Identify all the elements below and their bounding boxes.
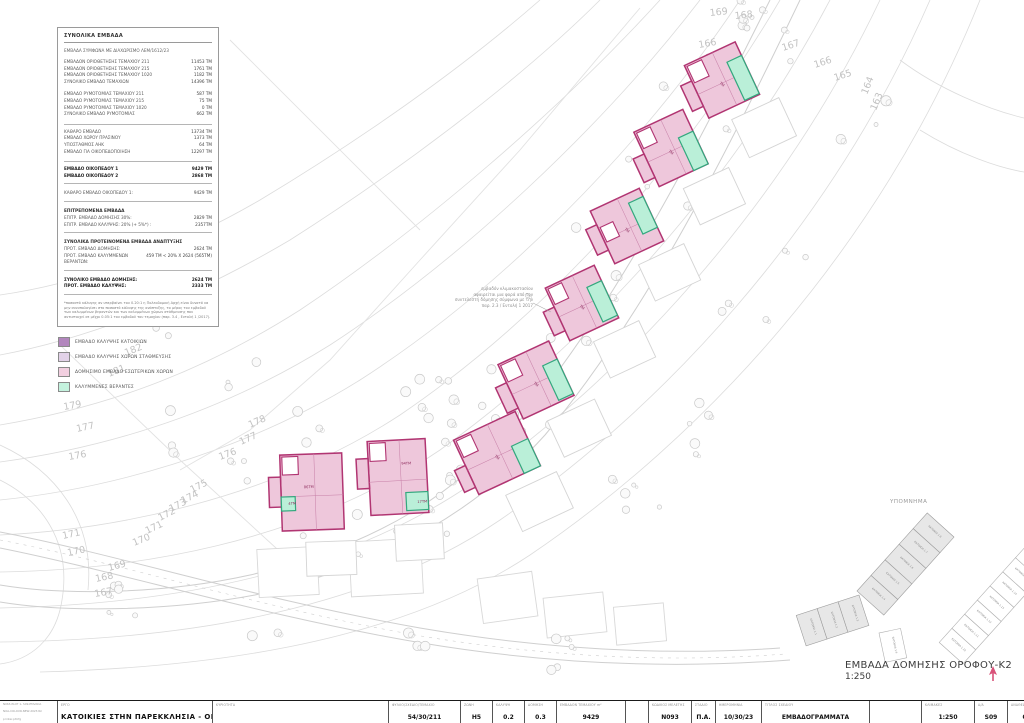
table-row-value: 2868 ΤΜ <box>192 173 212 180</box>
title-bar: N063-PLOT 1- S09-EMVADANOA-COLOUR-NEW-20… <box>0 700 1024 723</box>
titleblock-field-value: 9429 <box>560 715 622 722</box>
legend-label: ΕΜΒΑΔΟ ΚΑΛΥΨΗΣ ΧΩΡΩΝ ΣΤΑΘΜΕΥΣΗΣ <box>75 355 171 360</box>
table-row: ΚΑΘΑΡΟ ΕΜΒΑΔΟ13734 ΤΜ <box>64 129 212 136</box>
contour-label: 168 <box>734 9 753 22</box>
contour-label: 171 <box>61 527 81 542</box>
table-row: ΕΜΒΑΔΟ ΡΥΜΟΤΟΜΙΑΣ ΤΕΜΑΧΙΟΥ 21575 ΤΜ <box>64 98 212 105</box>
titleblock-spacer <box>625 701 648 723</box>
ownership-label: ΚΥΡΙΟΤΗΤΑ <box>216 703 385 707</box>
table-row: ΕΠΙΤΡ. ΕΜΒΑΔΟ ΔΟΜΗΣΗΣ 30%:2829 ΤΜ <box>64 215 212 222</box>
table-section: ΕΜΒΑΔΟ ΟΙΚΟΠΕΔΟΥ 19429 ΤΜΕΜΒΑΔΟ ΟΙΚΟΠΕΔΟ… <box>64 161 212 184</box>
table-section: ΣΥΝΟΛΙΚΑ ΠΡΟΤΕΙΝΟΜΕΝΑ ΕΜΒΑΔΑ ΑΝΑΠΤΥΞΗΣΠΡ… <box>64 239 212 271</box>
plan-title: ΕΜΒΑΔΑ ΔΟΜΗΣΗΣ ΟΡΟΦΟΥ-Κ2 <box>845 660 1012 671</box>
print-info-cell: N063-PLOT 1- S09-EMVADANOA-COLOUR-NEW-20… <box>0 701 57 723</box>
table-section-heading: ΣΥΝΟΛΙΚΑ ΠΡΟΤΕΙΝΟΜΕΝΑ ΕΜΒΑΔΑ ΑΝΑΠΤΥΞΗΣ <box>64 239 212 246</box>
legend-item: ΚΑΛΥΜΜΕΝΕΣ ΒΕΡΑΝΤΕΣ <box>58 382 173 392</box>
plan-title-block: ΕΜΒΑΔΑ ΔΟΜΗΣΗΣ ΟΡΟΦΟΥ-Κ2 1:250 <box>845 660 1012 682</box>
table-row-label: ΣΥΝΟΛΙΚΟ ΕΜΒΑΔΟ ΔΟΜΗΣΗΣ: <box>64 277 137 284</box>
table-row-value: 2624 ΤΜ <box>192 277 212 284</box>
building-area-label: 94ΤΜ <box>401 461 411 466</box>
titleblock-field-label: ΑΝΑΘΕΩΡΗΣΗ <box>1011 703 1024 707</box>
table-row-value: 2624 ΤΜ <box>194 246 212 253</box>
project-label: ΕΡΓΟ <box>61 703 209 707</box>
table-row-value: 9429 ΤΜ <box>194 190 212 197</box>
table-row: ΕΜΒΑΔΟΝ ΟΡΙΟΘΕΤΗΣΗΣ ΤΕΜΑΧΙΟΥ 10201182 ΤΜ <box>64 72 212 79</box>
contour-label: 177 <box>238 430 259 447</box>
table-section: ΚΑΘΑΡΟ ΕΜΒΑΔΟ13734 ΤΜΕΜΒΑΔΟ ΧΩΡΟΥ ΠΡΑΣΙΝ… <box>64 124 212 155</box>
print-info-line: NOA-COLOUR-NEW-2023.tbl <box>3 710 54 713</box>
legend-swatch <box>58 382 70 392</box>
titleblock-field: ΕΜΒΑΔΟΝ ΤΕΜΑΧΙΟΥ m²9429 <box>556 701 625 723</box>
north-arrow-icon <box>988 666 998 682</box>
table-row-value: 587 ΤΜ <box>197 91 213 98</box>
legend: ΕΜΒΑΔΟ ΚΑΛΥΨΗΣ ΚΑΤΟΙΚΙΩΝΕΜΒΑΔΟ ΚΑΛΥΨΗΣ Χ… <box>58 337 173 397</box>
annotation-line: παρ. 2.3 / Εντολή 1 2017 <box>431 303 533 309</box>
legend-label: ΔΟΜΗΣΙΜΟ ΕΜΒΑΔΟ ΕΣΩΤΕΡΙΚΩΝ ΧΩΡΩΝ <box>75 370 173 375</box>
table-row-label: ΕΜΒΑΔΟΝ ΟΡΙΟΘΕΤΗΣΗΣ ΤΕΜΑΧΙΟΥ 215 <box>64 66 149 73</box>
table-row: ΠΡΟΤ. ΕΜΒΑΔΟ ΚΑΛΥΨΗΣ:2333 ΤΜ <box>64 283 212 290</box>
table-row-value: 1761 ΤΜ <box>194 66 212 73</box>
legend-item: ΔΟΜΗΣΙΜΟ ΕΜΒΑΔΟ ΕΣΩΤΕΡΙΚΩΝ ΧΩΡΩΝ <box>58 367 173 377</box>
table-row-label: ΣΥΝΟΛΙΚΟ ΕΜΒΑΔΟ ΤΕΜΑΧΙΩΝ <box>64 79 129 86</box>
contour-label: 177 <box>75 420 95 435</box>
contour-label: 179 <box>63 399 83 413</box>
table-row: ΕΜΒΑΔΟ ΡΥΜΟΤΟΜΙΑΣ ΤΕΜΑΧΙΟΥ 211587 ΤΜ <box>64 91 212 98</box>
building-area-label: 17ΤΜ <box>417 500 427 505</box>
contour-label: 167 <box>781 38 802 54</box>
site-plan-sheet: 1691681671661651661651641631831821811791… <box>0 0 1024 723</box>
table-row-label: ΚΑΘΑΡΟ ΕΜΒΑΔΟ <box>64 129 101 136</box>
ownership-cell: ΚΥΡΙΟΤΗΤΑ <box>212 701 388 723</box>
table-row: ΕΠΙΤΡ. ΕΜΒΑΔΟ ΚΑΛΥΨΗΣ: 20% (+ 5%*) :2357… <box>64 222 212 229</box>
table-row-label: ΥΠΟΣΤΑΘΜΟΣ ΑΗΚ <box>64 142 104 149</box>
table-row-label: ΕΜΒΑΔΟ ΓΙΑ ΟΙΚΟΠΕΔΟΠΟΙΗΣΗ <box>64 149 130 156</box>
plan-scale: 1:250 <box>845 672 1012 682</box>
titleblock-field-value: 00-000000 <box>1011 715 1024 722</box>
table-row: ΚΑΘΑΡΟ ΕΜΒΑΔΟ ΟΙΚΟΠΕΔΟΥ 1:9429 ΤΜ <box>64 190 212 197</box>
table-row-value: 9429 ΤΜ <box>192 166 212 173</box>
titleblock-field: ΣΤΑΔΙΟΠ.Α. <box>691 701 715 723</box>
legend-item: ΕΜΒΑΔΟ ΚΑΛΥΨΗΣ ΚΑΤΟΙΚΙΩΝ <box>58 337 173 347</box>
titleblock-field-label: ΔΟΜΗΣΗ <box>528 703 553 707</box>
contour-label: 178 <box>247 413 268 430</box>
titleblock-field: ΤΙΤΛΟΣ ΣΧΕΔΙΟΥΕΜΒΑΔΟΓΡΑΜΜΑΤΑ <box>761 701 869 723</box>
table-row: ΥΠΟΣΤΑΘΜΟΣ ΑΗΚ64 ΤΜ <box>64 142 212 149</box>
table-row-label: ΣΥΝΟΛΙΚΟ ΕΜΒΑΔΟ ΡΥΜΟΤΟΜΙΑΣ <box>64 111 135 118</box>
titleblock-field-label: ΗΜΕΡΟΜΗΝΙΑ <box>719 703 758 707</box>
titleblock-field-label: ΕΜΒΑΔΟΝ ΤΕΜΑΧΙΟΥ m² <box>560 703 622 707</box>
titleblock-field: ΖΩΝΗΗ5 <box>460 701 492 723</box>
table-row-label: ΠΡΟΤ. ΕΜΒΑΔΟ ΔΟΜΗΣΗΣ: <box>64 246 120 253</box>
legend-swatch <box>58 352 70 362</box>
table-row-label: ΠΡΟΤ. ΕΜΒΑΔΟ ΚΑΛΥΨΗΣ: <box>64 283 126 290</box>
table-row: ΣΥΝΟΛΙΚΟ ΕΜΒΑΔΟ ΤΕΜΑΧΙΩΝ14396 ΤΜ <box>64 79 212 86</box>
print-info-line: N063-PLOT 1- S09-EMVADA <box>3 703 54 706</box>
titleblock-field-value: S09 <box>978 715 1004 722</box>
titleblock-field: ΦΥΛΛΟ/ΣΧΕΔΙΟ/ΤΕΜΑΧΙΟ54/30/211 <box>388 701 460 723</box>
table-row-label: ΕΠΙΤΡ. ΕΜΒΑΔΟ ΚΑΛΥΨΗΣ: 20% (+ 5%*) : <box>64 222 151 229</box>
titleblock-field-value: Π.Α. <box>695 715 712 722</box>
table-row-value: 2829 ΤΜ <box>194 215 212 222</box>
annotation-leader-line <box>533 303 551 312</box>
contour-label: 166 <box>698 37 718 51</box>
titleblock-field-value: 0.2 <box>496 715 521 722</box>
legend-label: ΕΜΒΑΔΟ ΚΑΛΥΨΗΣ ΚΑΤΟΙΚΙΩΝ <box>75 340 147 345</box>
legend-label: ΚΑΛΥΜΜΕΝΕΣ ΒΕΡΑΝΤΕΣ <box>75 385 134 390</box>
building-area-label: 86ΤΜ <box>304 485 314 489</box>
table-row: ΣΥΝΟΛΙΚΟ ΕΜΒΑΔΟ ΡΥΜΟΤΟΜΙΑΣ662 ΤΜ <box>64 111 212 118</box>
titleblock-field: ΚΛΙΜΑΚΕΣ1:250 <box>921 701 974 723</box>
table-row: ΣΥΝΟΛΙΚΟ ΕΜΒΑΔΟ ΔΟΜΗΣΗΣ:2624 ΤΜ <box>64 277 212 284</box>
staircase-annotation: εμβαδόν κλιμακοστασίουαφαιρείται μια φορ… <box>431 286 533 308</box>
titleblock-field-value: 1:250 <box>925 715 971 722</box>
titleblock-field-label: ΦΥΛΛΟ/ΣΧΕΔΙΟ/ΤΕΜΑΧΙΟ <box>392 703 457 707</box>
titleblock-field: ΚΑΛΥΨΗ0.2 <box>492 701 524 723</box>
table-row-value: 13734 ΤΜ <box>191 129 212 136</box>
table-row-label: ΚΑΘΑΡΟ ΕΜΒΑΔΟ ΟΙΚΟΠΕΔΟΥ 1: <box>64 190 133 197</box>
table-row-value: 1182 ΤΜ <box>194 72 212 79</box>
contour-label: 170 <box>66 544 86 559</box>
table-row: ΕΜΒΑΔΟ ΟΙΚΟΠΕΔΟΥ 22868 ΤΜ <box>64 173 212 180</box>
titleblock-field: ΑΝΑΘΕΩΡΗΣΗ00-000000 <box>1007 701 1024 723</box>
legend-swatch <box>58 337 70 347</box>
table-section: ΕΠΙΤΡΕΠΟΜΕΝΑ ΕΜΒΑΔΑΕΠΙΤΡ. ΕΜΒΑΔΟ ΔΟΜΗΣΗΣ… <box>64 208 212 233</box>
titleblock-field-value: ΕΜΒΑΔΟΓΡΑΜΜΑΤΑ <box>765 715 866 722</box>
contour-label: 170 <box>131 532 152 549</box>
titleblock-field-value: Ν093 <box>652 715 688 722</box>
table-row: ΕΜΒΑΔΟ ΡΥΜΟΤΟΜΙΑΣ ΤΕΜΑΧΙΟΥ 10200 ΤΜ <box>64 105 212 112</box>
contour-label: 165 <box>833 68 854 84</box>
table-row-value: 459 ΤΜ < 20% Χ 2624 (565ΤΜ) <box>146 253 212 266</box>
table-row-value: 662 ΤΜ <box>197 111 213 118</box>
contour-label: 169 <box>709 6 728 19</box>
table-row: ΠΡΟΤ. ΕΜΒΑΔΟ ΚΑΛΥΜΜΕΝΩΝ ΒΕΡΑΝΤΩΝ:459 ΤΜ … <box>64 253 212 266</box>
table-row-value: 12297 ΤΜ <box>191 149 212 156</box>
table-row: ΠΡΟΤ. ΕΜΒΑΔΟ ΔΟΜΗΣΗΣ:2624 ΤΜ <box>64 246 212 253</box>
table-sections: ΕΜΒΑΔΟΝ ΟΡΙΟΘΕΤΗΣΗΣ ΤΕΜΑΧΙΟΥ 21111453 ΤΜ… <box>64 59 212 295</box>
table-footnote: *ποσοστό κάλυψης αν υπερβαίνει του 0.20:… <box>64 301 212 320</box>
titleblock-field-label: ΚΩΔΙΚΟΣ ΜΕΛΕΤΗΣ <box>652 703 688 707</box>
table-row-value: 14396 ΤΜ <box>191 79 212 86</box>
titleblock-field-label: ΣΤΑΔΙΟ <box>695 703 712 707</box>
table-subtitle: ΕΜΒΑΔΑ ΣΥΜΦΩΝΑ ΜΕ ΔΙΑΧΩΡΙΣΜΟ ΛΕΜ/1612/23 <box>64 48 212 53</box>
table-row-label: ΕΠΙΤΡ. ΕΜΒΑΔΟ ΔΟΜΗΣΗΣ 30%: <box>64 215 132 222</box>
titleblock-field: ΔΟΜΗΣΗ0.3 <box>524 701 556 723</box>
titleblock-field: ΚΩΔΙΚΟΣ ΜΕΛΕΤΗΣΝ093 <box>648 701 691 723</box>
titleblock-field-label: ΚΛΙΜΑΚΕΣ <box>925 703 971 707</box>
legend-swatch <box>58 367 70 377</box>
project-name: ΚΑΤΟΙΚΙΕΣ ΣΤΗΝ ΠΑΡΕΚΚΛΗΣΙΑ - ΟΙΚΟΠΕΔΟ 1 <box>61 714 209 722</box>
table-row-label: ΕΜΒΑΔΟ ΡΥΜΟΤΟΜΙΑΣ ΤΕΜΑΧΙΟΥ 215 <box>64 98 144 105</box>
titleblock-field-label: ΤΙΤΛΟΣ ΣΧΕΔΙΟΥ <box>765 703 866 707</box>
keymap-plot <box>879 628 907 662</box>
titleblock-field-value: 0.3 <box>528 715 553 722</box>
table-row: ΕΜΒΑΔΟ ΧΩΡΟΥ ΠΡΑΣΙΝΟΥ1373 ΤΜ <box>64 135 212 142</box>
titleblock-spacer <box>869 701 921 723</box>
table-row-value: 11453 ΤΜ <box>191 59 212 66</box>
table-row-label: ΕΜΒΑΔΟ ΟΙΚΟΠΕΔΟΥ 1 <box>64 166 118 173</box>
titleblock-field-label: ΚΑΛΥΨΗ <box>496 703 521 707</box>
titleblock-field-value: 10/30/23 <box>719 715 758 722</box>
table-row-label: ΕΜΒΑΔΟΝ ΟΡΙΟΘΕΤΗΣΗΣ ΤΕΜΑΧΙΟΥ 211 <box>64 59 149 66</box>
titleblock-field: ΗΜΕΡΟΜΗΝΙΑ10/30/23 <box>715 701 761 723</box>
print-info-line: printer.pltcfg <box>3 718 54 721</box>
project-cell: ΕΡΓΟΚΑΤΟΙΚΙΕΣ ΣΤΗΝ ΠΑΡΕΚΚΛΗΣΙΑ - ΟΙΚΟΠΕΔ… <box>57 701 212 723</box>
table-row-label: ΠΡΟΤ. ΕΜΒΑΔΟ ΚΑΛΥΜΜΕΝΩΝ ΒΕΡΑΝΤΩΝ: <box>64 253 142 266</box>
contour-label: 166 <box>813 55 834 71</box>
contour-label: 176 <box>217 446 238 463</box>
table-section: ΕΜΒΑΔΟ ΡΥΜΟΤΟΜΙΑΣ ΤΕΜΑΧΙΟΥ 211587 ΤΜΕΜΒΑ… <box>64 91 212 117</box>
building-area-label: 4ΤΜ <box>288 502 296 506</box>
table-section: ΚΑΘΑΡΟ ΕΜΒΑΔΟ ΟΙΚΟΠΕΔΟΥ 1:9429 ΤΜ <box>64 190 212 202</box>
titleblock-field-label: Α/Α <box>978 703 1004 707</box>
table-title: ΣΥΝΟΛΙΚΑ ΕΜΒΑΔΑ <box>64 33 212 43</box>
table-row-value: 75 ΤΜ <box>199 98 212 105</box>
table-row: ΕΜΒΑΔΟ ΟΙΚΟΠΕΔΟΥ 19429 ΤΜ <box>64 166 212 173</box>
area-summary-table: ΣΥΝΟΛΙΚΑ ΕΜΒΑΔΑ ΕΜΒΑΔΑ ΣΥΜΦΩΝΑ ΜΕ ΔΙΑΧΩΡ… <box>57 27 219 327</box>
table-row-value: 0 ΤΜ <box>202 105 212 112</box>
table-row-label: ΕΜΒΑΔΟ ΧΩΡΟΥ ΠΡΑΣΙΝΟΥ <box>64 135 121 142</box>
contour-label: 176 <box>68 449 88 463</box>
table-row: ΕΜΒΑΔΟΝ ΟΡΙΟΘΕΤΗΣΗΣ ΤΕΜΑΧΙΟΥ 21111453 ΤΜ <box>64 59 212 66</box>
table-row-value: 1373 ΤΜ <box>194 135 212 142</box>
legend-item: ΕΜΒΑΔΟ ΚΑΛΥΨΗΣ ΧΩΡΩΝ ΣΤΑΘΜΕΥΣΗΣ <box>58 352 173 362</box>
table-row-label: ΕΜΒΑΔΟΝ ΟΡΙΟΘΕΤΗΣΗΣ ΤΕΜΑΧΙΟΥ 1020 <box>64 72 152 79</box>
table-row-value: 64 ΤΜ <box>199 142 212 149</box>
key-map: ΥΠΟΜΝΗΜΑΚΑΤΟΙΚΙΑ 1.1ΚΑΤΟΙΚΙΑ 1.2ΚΑΤΟΙΚΙΑ… <box>796 499 1024 664</box>
table-row-label: ΕΜΒΑΔΟ ΡΥΜΟΤΟΜΙΑΣ ΤΕΜΑΧΙΟΥ 1020 <box>64 105 147 112</box>
titleblock-field-label: ΖΩΝΗ <box>464 703 489 707</box>
table-section-heading: ΕΠΙΤΡΕΠΟΜΕΝΑ ΕΜΒΑΔΑ <box>64 208 212 215</box>
table-row-label: ΕΜΒΑΔΟ ΡΥΜΟΤΟΜΙΑΣ ΤΕΜΑΧΙΟΥ 211 <box>64 91 144 98</box>
titleblock-field-value: Η5 <box>464 715 489 722</box>
table-row-value: 2333 ΤΜ <box>192 283 212 290</box>
table-row-value: 2357ΤΜ <box>195 222 212 229</box>
table-section: ΕΜΒΑΔΟΝ ΟΡΙΟΘΕΤΗΣΗΣ ΤΕΜΑΧΙΟΥ 21111453 ΤΜ… <box>64 59 212 85</box>
titleblock-field-value: 54/30/211 <box>392 715 457 722</box>
table-row: ΕΜΒΑΔΟΝ ΟΡΙΟΘΕΤΗΣΗΣ ΤΕΜΑΧΙΟΥ 2151761 ΤΜ <box>64 66 212 73</box>
table-section: ΣΥΝΟΛΙΚΟ ΕΜΒΑΔΟ ΔΟΜΗΣΗΣ:2624 ΤΜΠΡΟΤ. ΕΜΒ… <box>64 277 212 295</box>
table-row-label: ΕΜΒΑΔΟ ΟΙΚΟΠΕΔΟΥ 2 <box>64 173 118 180</box>
titleblock-field: Α/ΑS09 <box>974 701 1007 723</box>
table-row: ΕΜΒΑΔΟ ΓΙΑ ΟΙΚΟΠΕΔΟΠΟΙΗΣΗ12297 ΤΜ <box>64 149 212 156</box>
keymap-title: ΥΠΟΜΝΗΜΑ <box>889 499 927 505</box>
